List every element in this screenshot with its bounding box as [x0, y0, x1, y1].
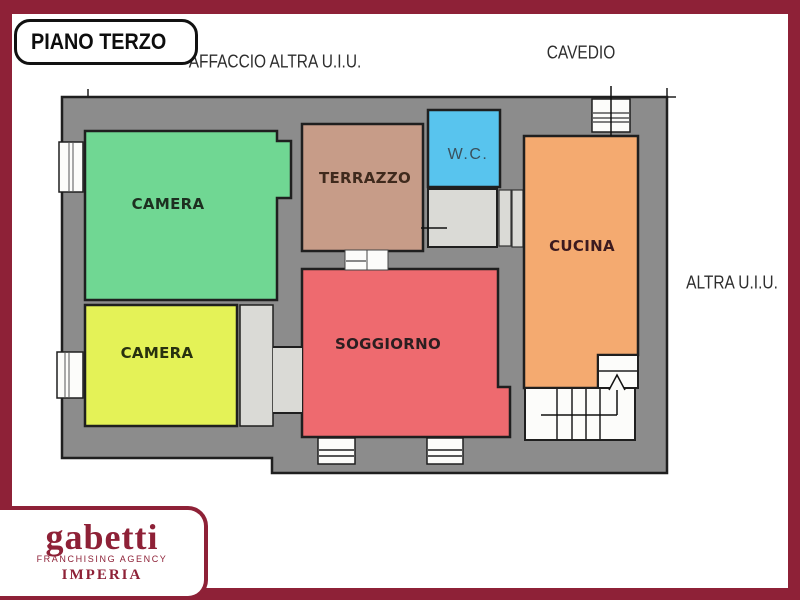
window — [59, 142, 83, 192]
room-label-terrazzo: TERRAZZO — [319, 169, 411, 187]
hallway-opening — [273, 347, 302, 413]
floor-title-box: PIANO TERZO — [14, 19, 198, 65]
hallway — [240, 305, 273, 426]
agency-logo-city: IMPERIA — [62, 567, 143, 584]
room-label-camera-1: CAMERA — [132, 195, 205, 213]
room-camera-2 — [85, 305, 237, 426]
door-leaf — [512, 190, 523, 247]
room-cucina — [524, 136, 638, 388]
door-terrazzo-soggiorno — [345, 250, 388, 270]
room-label-wc: W.C. — [448, 146, 489, 164]
room-label-camera-2: CAMERA — [121, 344, 194, 362]
annotation-altra-uiu: ALTRA U.I.U. — [686, 273, 778, 294]
french-window — [318, 438, 355, 464]
annotation-affaccio: AFFACCIO ALTRA U.I.U. — [189, 52, 362, 73]
agency-logo-tagline: FRANCHISING AGENCY — [37, 554, 168, 564]
agency-logo-brand: gabetti — [46, 522, 159, 553]
floor-title: PIANO TERZO — [31, 29, 166, 55]
annotation-cavedio: CAVEDIO — [547, 43, 616, 64]
floorplan-page: PIANO TERZO AFFACCIO ALTRA U.I.U. CAVEDI… — [0, 0, 800, 600]
room-terrazzo — [302, 124, 423, 251]
door-leaf — [499, 190, 511, 246]
agency-logo: gabetti FRANCHISING AGENCY IMPERIA — [0, 506, 208, 600]
room-label-soggiorno: SOGGIORNO — [335, 335, 441, 353]
french-window — [427, 438, 463, 464]
room-camera-1 — [85, 131, 291, 300]
room-anteroom — [428, 189, 497, 247]
room-soggiorno — [302, 269, 510, 437]
cavedio-vent — [592, 86, 630, 136]
window — [57, 352, 83, 398]
room-label-cucina: CUCINA — [549, 237, 615, 255]
